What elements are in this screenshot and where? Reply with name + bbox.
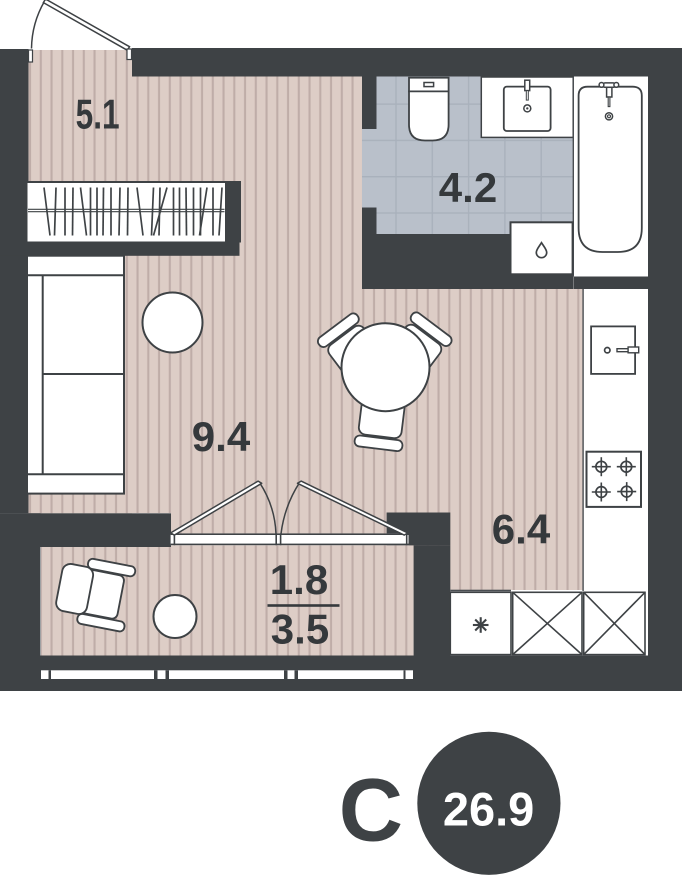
- svg-text:26.9: 26.9: [443, 782, 534, 835]
- svg-text:5.1: 5.1: [76, 91, 120, 138]
- svg-text:4.2: 4.2: [439, 164, 497, 211]
- svg-text:C: C: [339, 759, 403, 859]
- svg-text:9.4: 9.4: [192, 413, 251, 460]
- svg-text:6.4: 6.4: [492, 506, 551, 553]
- svg-text:1.8: 1.8: [270, 556, 328, 603]
- svg-text:3.5: 3.5: [271, 606, 329, 653]
